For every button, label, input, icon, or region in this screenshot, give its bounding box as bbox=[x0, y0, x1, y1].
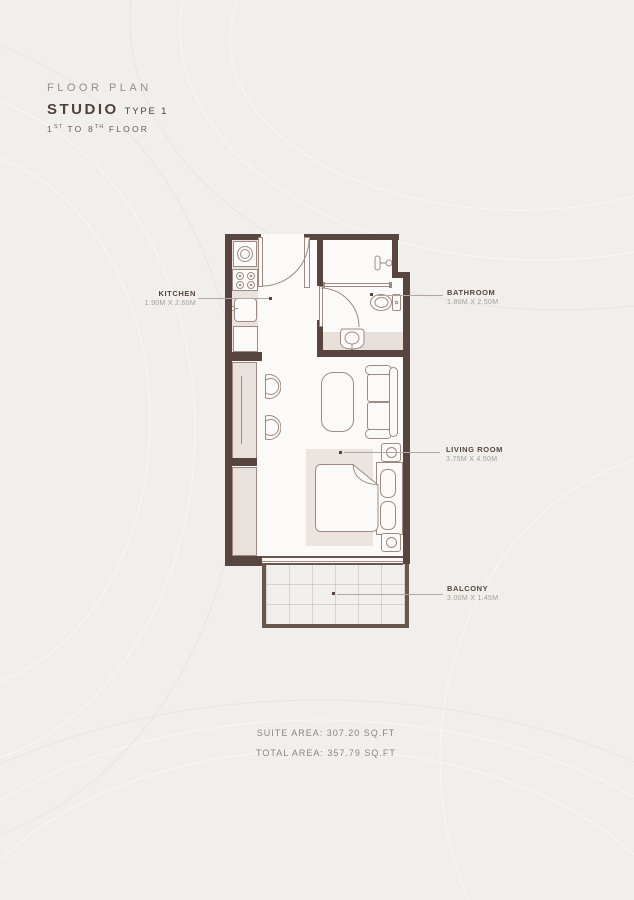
suite-area-text: SUITE AREA: 307.20 SQ.FT bbox=[26, 728, 626, 738]
leader-dot-bathroom bbox=[370, 293, 373, 296]
floor-plan-page: FLOOR PLAN STUDIOTYPE 1 1ST TO 8TH FLOOR bbox=[0, 0, 634, 900]
leader-dot-balcony bbox=[332, 592, 335, 595]
room-label-kitchen: KITCHEN 1.90M X 2.60M bbox=[106, 290, 196, 308]
room-label-bathroom: BATHROOM 1.80M X 2.50M bbox=[447, 289, 557, 307]
pillow-icon bbox=[380, 469, 396, 498]
nightstand-icon bbox=[381, 533, 401, 552]
wardrobe-icon bbox=[232, 362, 257, 460]
outer-wall-top-kitchen bbox=[225, 234, 261, 240]
cabinet-icon bbox=[233, 326, 258, 352]
balcony-wall-right bbox=[405, 563, 409, 628]
stove-icon bbox=[232, 269, 258, 291]
bathroom-wall-bottom bbox=[317, 350, 410, 357]
balcony-wall-left bbox=[262, 563, 266, 628]
balcony-wall-bottom bbox=[262, 624, 409, 628]
room-name: BATHROOM bbox=[447, 289, 557, 297]
leader-dot-kitchen bbox=[269, 297, 272, 300]
outer-wall-left bbox=[225, 234, 232, 564]
burner-icon bbox=[247, 272, 255, 280]
storage-cabinet-icon bbox=[232, 467, 257, 556]
pillow-icon bbox=[380, 501, 396, 530]
page-title-eyebrow: FLOOR PLAN bbox=[47, 82, 168, 94]
burner-icon bbox=[236, 281, 244, 289]
room-dims: 1.90M X 2.60M bbox=[106, 300, 196, 308]
balcony-window bbox=[262, 556, 403, 565]
leader-dot-living-room bbox=[339, 451, 342, 454]
burner-icon bbox=[247, 281, 255, 289]
floor-range-sup: ST bbox=[54, 124, 63, 130]
washing-machine-drum-inner bbox=[240, 249, 250, 259]
bed-icon bbox=[315, 464, 381, 534]
total-area-text: TOTAL AREA: 357.79 SQ.FT bbox=[26, 748, 626, 758]
sofa-icon bbox=[365, 365, 398, 439]
chair-icon bbox=[257, 414, 281, 441]
sofa-cushion bbox=[367, 402, 391, 430]
unit-type: TYPE 1 bbox=[125, 106, 169, 117]
shower-partition-cap bbox=[389, 282, 392, 288]
bottom-corner-wall bbox=[225, 556, 262, 566]
sofa-back bbox=[389, 367, 398, 437]
area-summary: SUITE AREA: 307.20 SQ.FT TOTAL AREA: 357… bbox=[26, 728, 626, 758]
unit-name: STUDIO bbox=[47, 101, 119, 118]
floor-range-part: 1 bbox=[47, 124, 54, 134]
room-label-living-room: LIVING ROOM 3.75M X 4.50M bbox=[446, 446, 556, 464]
leader-line-balcony bbox=[337, 594, 443, 595]
kitchen-sink-icon bbox=[234, 298, 257, 322]
title-block: FLOOR PLAN STUDIOTYPE 1 1ST TO 8TH FLOOR bbox=[47, 82, 168, 134]
leader-line-living-room bbox=[344, 452, 440, 453]
outer-wall-right bbox=[403, 272, 410, 564]
entrance-door-swing bbox=[263, 239, 311, 288]
bathroom-door-swing bbox=[321, 288, 361, 329]
burner-icon bbox=[236, 272, 244, 280]
kitchen-divider-wall bbox=[225, 352, 262, 361]
floor-range: 1ST TO 8TH FLOOR bbox=[47, 124, 168, 134]
floor-range-part: TO 8 bbox=[63, 124, 95, 134]
leader-line-bathroom bbox=[375, 295, 443, 296]
chair-icon bbox=[257, 373, 281, 400]
floor-range-sup: TH bbox=[95, 124, 104, 130]
washing-machine-icon bbox=[233, 241, 257, 267]
wardrobe-rail bbox=[241, 376, 242, 444]
room-dims: 3.00M X 1.45M bbox=[447, 595, 557, 603]
unit-title: STUDIOTYPE 1 bbox=[47, 101, 168, 119]
room-name: LIVING ROOM bbox=[446, 446, 556, 454]
room-name: KITCHEN bbox=[106, 290, 196, 298]
sofa-cushion bbox=[367, 374, 391, 402]
shower-partition bbox=[322, 283, 392, 287]
room-dims: 3.75M X 4.50M bbox=[446, 456, 556, 464]
room-name: BALCONY bbox=[447, 585, 557, 593]
coffee-table-icon bbox=[321, 372, 354, 432]
leader-line-kitchen bbox=[198, 298, 271, 299]
nightstand-lamp bbox=[386, 537, 397, 548]
room-label-balcony: BALCONY 3.00M X 1.45M bbox=[447, 585, 557, 603]
sofa-armrest bbox=[365, 429, 392, 439]
room-dims: 1.80M X 2.50M bbox=[447, 299, 557, 307]
mid-divider-wall bbox=[225, 458, 257, 466]
floor-range-part: FLOOR bbox=[104, 124, 149, 134]
bathroom-wall-left-upper bbox=[317, 234, 323, 286]
